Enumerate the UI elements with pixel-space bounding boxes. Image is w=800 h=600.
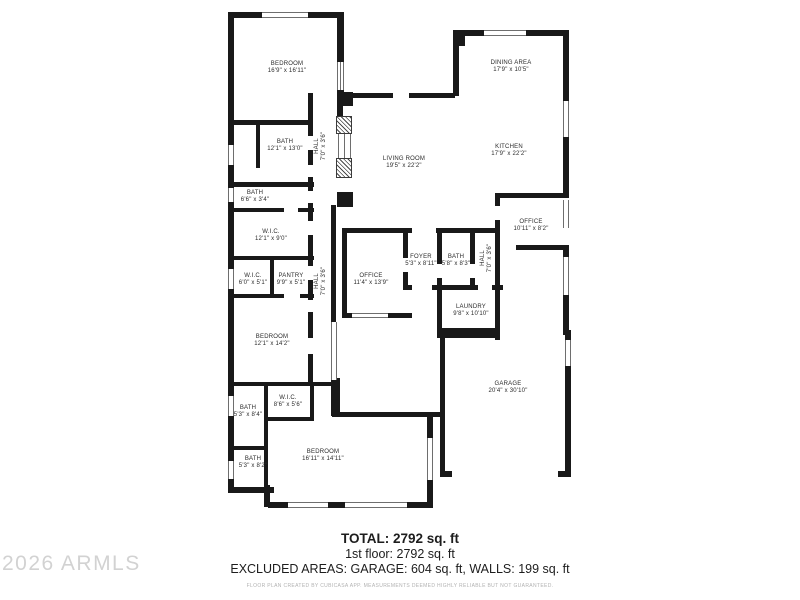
room-label-office-2: OFFICE11'4" x 13'9" (353, 273, 388, 287)
door-opening (412, 285, 432, 290)
window (337, 62, 344, 90)
room-label-foyer: FOYER5'3" x 8'11" (405, 254, 437, 268)
room-dimensions: 7'0" x 3'6" (321, 267, 328, 295)
window (563, 257, 569, 295)
room-name: HALL (480, 244, 487, 272)
room-dimensions: 16'11" x 14'11" (302, 456, 344, 463)
room-dimensions: 12'1" x 14'2" (254, 341, 290, 348)
room-label-bedroom-2: BEDROOM12'1" x 14'2" (254, 334, 290, 348)
room-label-living-room: LIVING ROOM19'5" x 22'2" (383, 156, 425, 170)
door-opening (284, 208, 298, 212)
window (228, 188, 234, 202)
room-label-bedroom-1: BEDROOM16'9" x 16'11" (268, 61, 307, 75)
wall-segment (331, 205, 336, 325)
window (565, 340, 571, 366)
room-name: KITCHEN (491, 144, 527, 151)
room-name: BEDROOM (254, 334, 290, 341)
window (228, 145, 234, 165)
window (563, 101, 569, 137)
room-label-bedroom-3: BEDROOM16'11" x 14'11" (302, 449, 344, 463)
room-label-kitchen: KITCHEN17'9" x 22'2" (491, 144, 527, 158)
room-dimensions: 10'11" x 8'2" (513, 226, 548, 233)
window (352, 313, 388, 318)
room-name: BATH (442, 254, 470, 261)
room-name: OFFICE (353, 273, 388, 280)
door-opening (284, 294, 300, 298)
room-name: W.I.C. (239, 273, 267, 280)
fireplace-hatch (336, 158, 352, 178)
window (345, 502, 407, 508)
wall-segment (228, 120, 312, 125)
wall-segment (337, 98, 343, 118)
window (228, 269, 234, 289)
wall-segment (228, 182, 314, 187)
room-name: BATH (267, 139, 303, 146)
door-opening (308, 266, 313, 280)
room-dimensions: 11'4" x 13'9" (353, 280, 388, 287)
room-dimensions: 6'0" x 5'1" (239, 280, 267, 287)
room-name: BATH (234, 405, 262, 412)
door-opening (393, 93, 409, 98)
wall-segment (270, 256, 274, 298)
wall-segment (331, 378, 340, 416)
door-opening (308, 191, 313, 203)
room-dimensions: 5'3" x 8'4" (234, 412, 262, 419)
room-name: LAUNDRY (453, 304, 489, 311)
room-dimensions: 6'6" x 3'4" (241, 197, 269, 204)
window (427, 438, 433, 480)
wall-segment (437, 328, 499, 338)
wall-segment (256, 122, 260, 168)
room-label-laundry: LAUNDRY9'8" x 10'10" (453, 304, 489, 318)
wall-segment (264, 385, 268, 489)
room-name: HALL (314, 132, 321, 160)
room-label-bath-4: BATH5'3" x 8'4" (234, 405, 262, 419)
room-dimensions: 12'1" x 9'0" (255, 236, 287, 243)
room-dimensions: 9'8" x 10'10" (453, 311, 489, 318)
wall-segment (264, 485, 270, 507)
room-label-hall-3: HALL7'0" x 3'6" (480, 244, 494, 272)
room-label-wic-1: W.I.C.12'1" x 9'0" (255, 229, 287, 243)
room-label-office-1: OFFICE10'11" x 8'2" (513, 219, 548, 233)
room-name: BATH (239, 456, 267, 463)
room-name: LIVING ROOM (383, 156, 425, 163)
window (288, 502, 328, 508)
room-label-hall-2: HALL7'0" x 3'6" (314, 267, 328, 295)
room-dimensions: 5'8" x 8'3" (442, 261, 470, 268)
room-dimensions: 9'9" x 5'1" (277, 280, 305, 287)
room-name: FOYER (405, 254, 437, 261)
room-name: HALL (314, 267, 321, 295)
wall-segment (264, 417, 314, 421)
room-label-wic-2: W.I.C.6'0" x 5'1" (239, 273, 267, 287)
room-name: BEDROOM (302, 449, 344, 456)
disclaimer-text: FLOOR PLAN CREATED BY CUBICASA APP. MEAS… (0, 583, 800, 589)
room-dimensions: 5'3" x 8'2" (239, 463, 267, 470)
room-label-wic-3: W.I.C.8'6" x 5'6" (274, 395, 302, 409)
room-name: GARAGE (488, 381, 527, 388)
wall-segment (440, 330, 445, 477)
door-opening (308, 300, 313, 312)
wall-segment (228, 12, 234, 493)
room-dimensions: 12'1" x 13'0" (267, 146, 303, 153)
door-opening (308, 165, 313, 177)
window (338, 133, 351, 159)
total-area-text: TOTAL: 2792 sq. ft (0, 531, 800, 546)
room-dimensions: 7'0" x 3'6" (321, 132, 328, 160)
room-dimensions: 16'9" x 16'11" (268, 68, 307, 75)
armls-watermark: 2026 ARMLS (2, 552, 141, 576)
room-dimensions: 19'5" x 22'2" (383, 163, 425, 170)
wall-segment (310, 385, 314, 421)
room-name: BATH (241, 190, 269, 197)
door-opening (495, 206, 500, 220)
door-opening (478, 285, 492, 290)
room-name: PANTRY (277, 273, 305, 280)
door-opening (470, 264, 475, 278)
wall-segment (337, 192, 353, 207)
room-label-hall-1: HALL7'0" x 3'6" (314, 132, 328, 160)
room-name: W.I.C. (255, 229, 287, 236)
room-label-bath-2: BATH6'6" x 3'4" (241, 190, 269, 204)
door-opening (452, 471, 558, 477)
room-dimensions: 17'9" x 22'2" (491, 151, 527, 158)
window (563, 200, 569, 228)
room-label-garage: GARAGE20'4" x 30'10" (488, 381, 527, 395)
door-opening (308, 136, 313, 150)
room-name: OFFICE (513, 219, 548, 226)
door-opening (500, 245, 516, 250)
door-opening (308, 221, 313, 235)
floor-plan: BEDROOM16'9" x 16'11"BATH12'1" x 13'0"BA… (0, 0, 800, 600)
room-name: W.I.C. (274, 395, 302, 402)
wall-segment (470, 228, 475, 290)
room-label-bath-3: BATH5'8" x 8'3" (442, 254, 470, 268)
room-label-bath-5: BATH5'3" x 8'2" (239, 456, 267, 470)
window (484, 30, 526, 36)
room-dimensions: 20'4" x 30'10" (488, 388, 527, 395)
wall-segment (453, 30, 459, 96)
wall-segment (495, 193, 569, 198)
door-opening (308, 338, 313, 354)
door-opening (412, 228, 436, 233)
window (262, 12, 308, 18)
wall-segment (332, 412, 432, 417)
room-name: DINING AREA (491, 60, 532, 67)
window (228, 461, 234, 479)
room-dimensions: 8'6" x 5'6" (274, 402, 302, 409)
room-name: BEDROOM (268, 61, 307, 68)
room-label-pantry: PANTRY9'9" x 5'1" (277, 273, 305, 287)
window (331, 322, 337, 380)
room-dimensions: 17'9" x 10'5" (491, 67, 532, 74)
wall-segment (228, 382, 340, 386)
wall-segment (228, 208, 314, 212)
room-label-bath-1: BATH12'1" x 13'0" (267, 139, 303, 153)
room-dimensions: 5'3" x 8'11" (405, 261, 437, 268)
room-dimensions: 7'0" x 3'6" (487, 244, 494, 272)
wall-segment (342, 228, 347, 318)
room-label-dining-area: DINING AREA17'9" x 10'5" (491, 60, 532, 74)
wall-segment (228, 446, 268, 450)
wall-segment (228, 294, 314, 298)
fireplace-hatch (336, 116, 352, 134)
